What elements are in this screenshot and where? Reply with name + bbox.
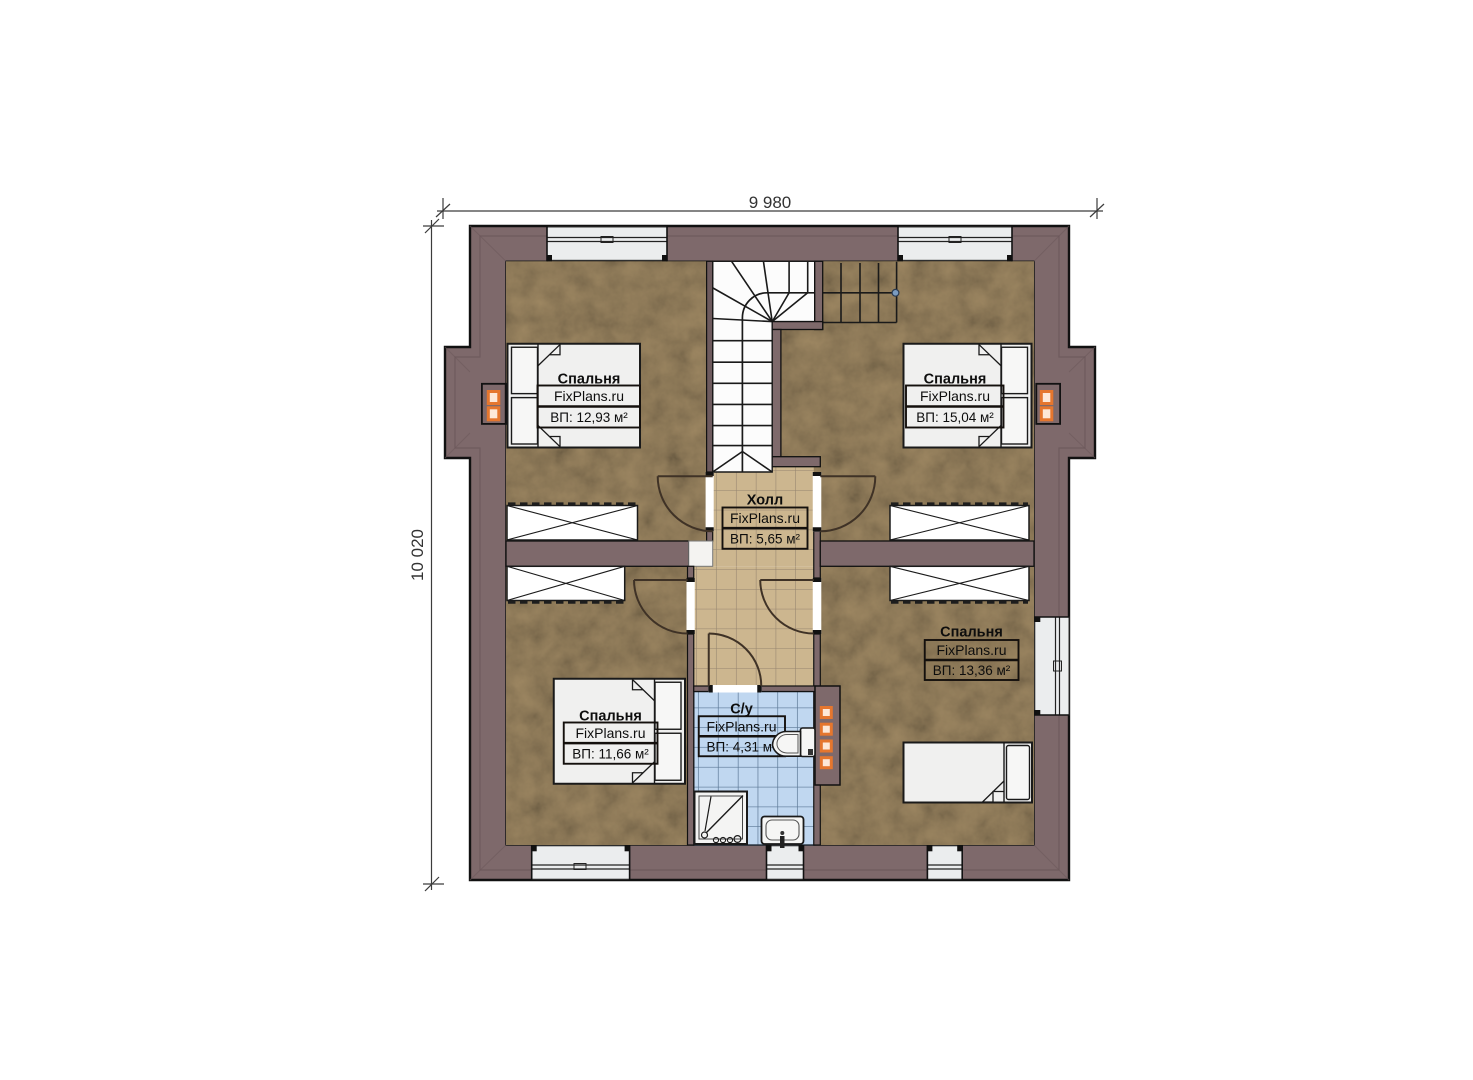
svg-text:9 980: 9 980 xyxy=(749,193,792,212)
svg-text:ВП: 5,65 м²: ВП: 5,65 м² xyxy=(730,531,801,546)
svg-text:ВП: 13,36 м²: ВП: 13,36 м² xyxy=(933,663,1011,678)
svg-text:Холл: Холл xyxy=(747,493,783,509)
svg-text:FixPlans.ru: FixPlans.ru xyxy=(554,388,624,404)
svg-text:ВП: 11,66 м²: ВП: 11,66 м² xyxy=(572,746,649,761)
svg-text:10 020: 10 020 xyxy=(408,529,427,581)
svg-text:FixPlans.ru: FixPlans.ru xyxy=(730,510,800,526)
svg-text:FixPlans.ru: FixPlans.ru xyxy=(920,388,990,404)
svg-text:Спальня: Спальня xyxy=(940,625,1003,641)
svg-text:ВП: 15,04 м²: ВП: 15,04 м² xyxy=(916,410,994,425)
svg-text:FixPlans.ru: FixPlans.ru xyxy=(575,725,645,741)
svg-text:FixPlans.ru: FixPlans.ru xyxy=(936,642,1006,658)
svg-text:FixPlans.ru: FixPlans.ru xyxy=(706,718,776,734)
svg-text:С/у: С/у xyxy=(730,702,753,718)
svg-text:ВП: 12,93 м²: ВП: 12,93 м² xyxy=(550,410,628,425)
svg-text:ВП: 4,31 м²: ВП: 4,31 м² xyxy=(706,739,777,754)
